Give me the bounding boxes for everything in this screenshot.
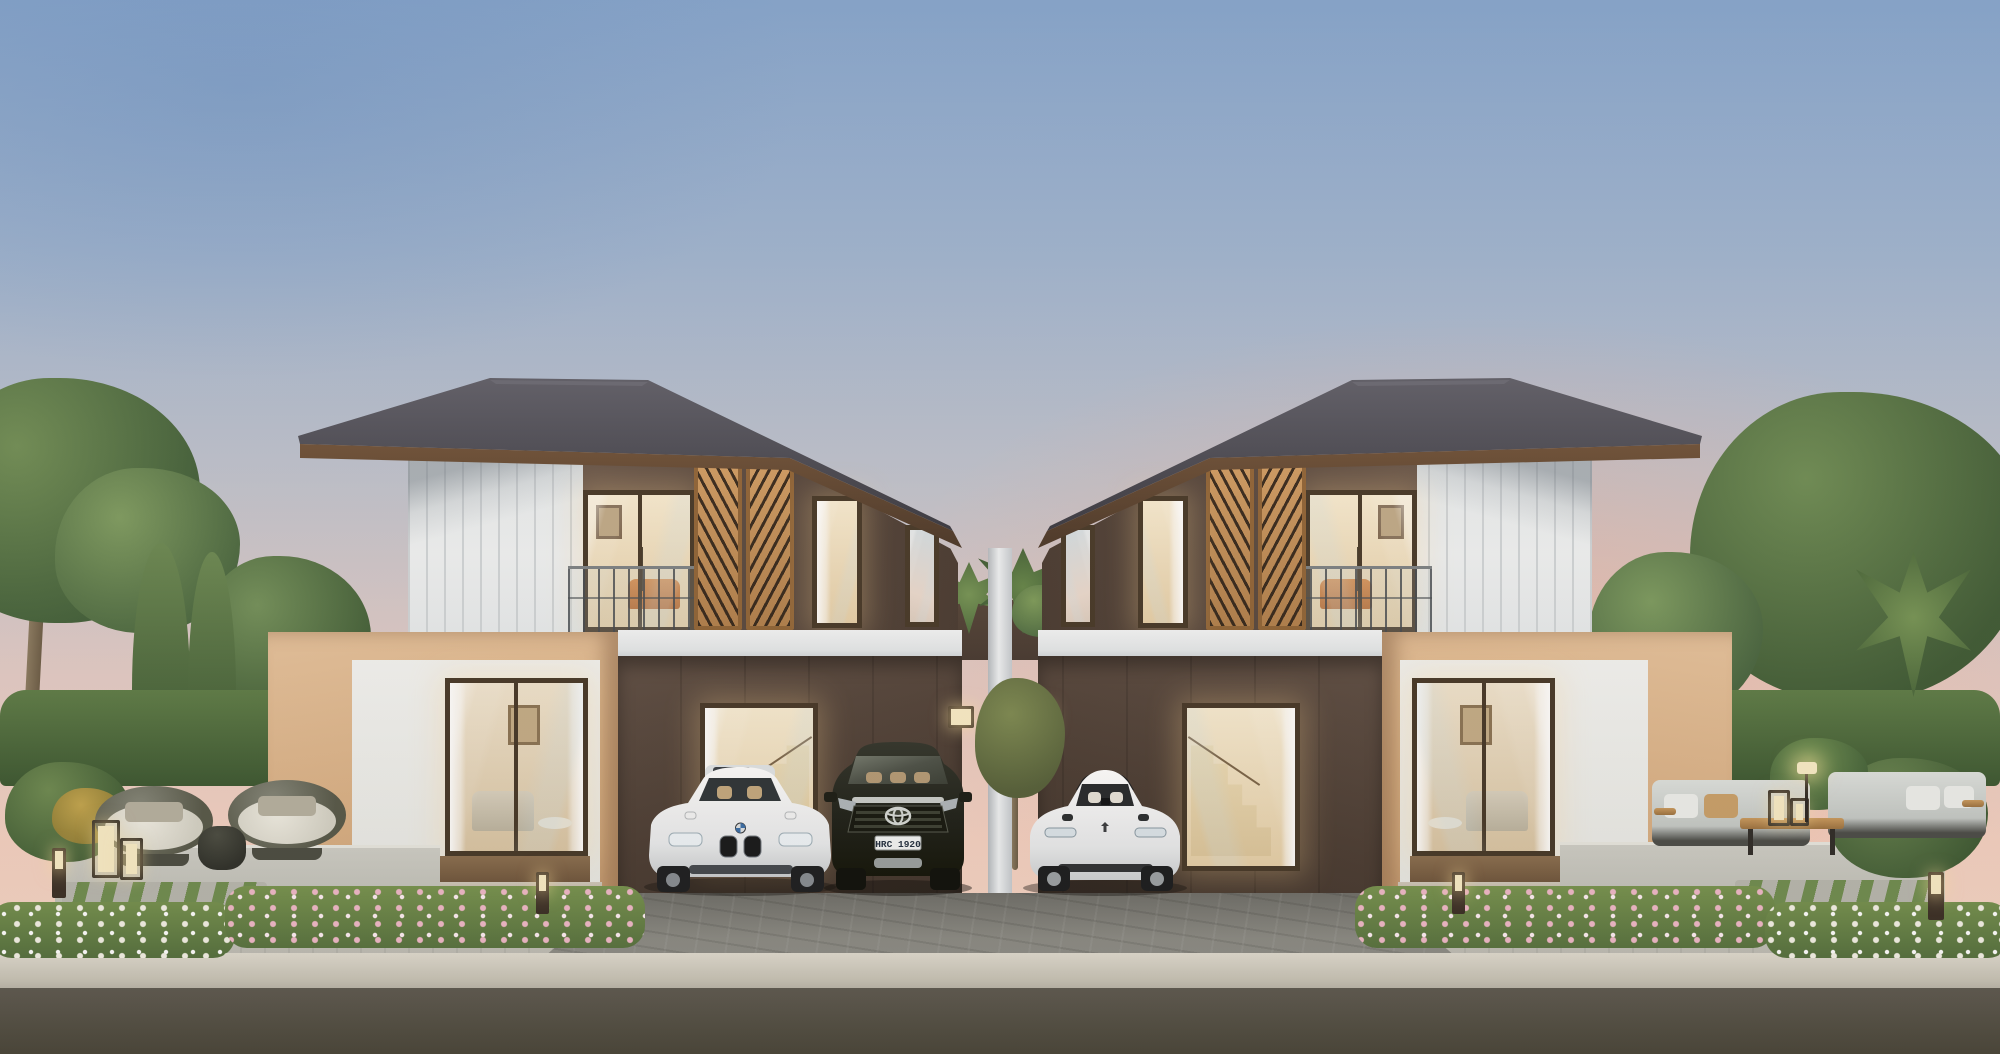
floor-lamp-glow [1797,762,1817,774]
bollard-light [536,872,549,914]
side-mirror [685,812,696,819]
bollard-light [1928,872,1944,920]
side-mirror [1138,814,1149,821]
headlight [1045,828,1076,837]
front-lip [1058,864,1153,872]
wheel-hub [800,873,814,887]
windshield [699,778,781,801]
living-room-window [1412,678,1555,856]
grille-bar [854,825,942,828]
floor-lamp-pole [1805,770,1808,822]
concrete-curb [0,953,2000,993]
wheel-hub [1047,872,1061,886]
headlight [1135,828,1166,837]
white-flower-bed [1765,902,2000,958]
asphalt-road [0,988,2000,1054]
wheel [930,868,960,890]
glass-reflection [1417,683,1550,851]
candle-lantern [92,820,120,878]
headlight [779,833,812,846]
side-mirror [1062,814,1073,821]
kidney-grille [720,836,737,857]
bollard-light [1452,872,1465,914]
window-glass [1417,683,1550,851]
car-seat [866,772,882,783]
side-mirror [959,792,972,802]
license-plate-text: HRC 1920 [875,839,921,850]
side-mirror [824,792,837,802]
staircase-window [1182,703,1300,871]
table-lantern [1768,790,1790,826]
window-glass [1187,708,1295,866]
headlight [669,833,702,846]
grille-bar [856,811,940,814]
car-seat [890,772,906,783]
white-sedan [633,763,848,898]
skid-plate [874,858,922,868]
hip-roof [1030,370,1710,560]
glass-reflection [1187,708,1295,866]
bollard-light [52,848,66,898]
black-suv: HRC 1920 [818,740,978,898]
white-electric-car [1018,766,1193,898]
grille-bar [855,818,941,821]
pink-flower-bed [1355,886,1775,948]
lower-intake [689,865,793,874]
car-seat [1110,792,1123,803]
side-table [198,826,246,870]
wheel [836,868,866,890]
car-seat [747,786,762,799]
outdoor-sofa [1828,772,1986,838]
car-seat [717,786,732,799]
railing-midbar [1302,597,1432,599]
roof-fascia [1038,444,1700,548]
pink-flower-bed [225,886,645,948]
candle-lantern [120,838,143,880]
scene-architectural-rendering: HRC 1920 [0,0,2000,1054]
side-mirror [785,812,796,819]
kidney-grille [744,836,761,857]
wheel-hub [666,873,680,887]
touchscreen [1101,798,1110,805]
chrome-brow [852,797,944,803]
balcony-railing [1302,566,1432,635]
car-seat [914,772,930,783]
white-flower-bed [0,902,235,958]
car-seat [1088,792,1101,803]
wheel-hub [1150,872,1164,886]
